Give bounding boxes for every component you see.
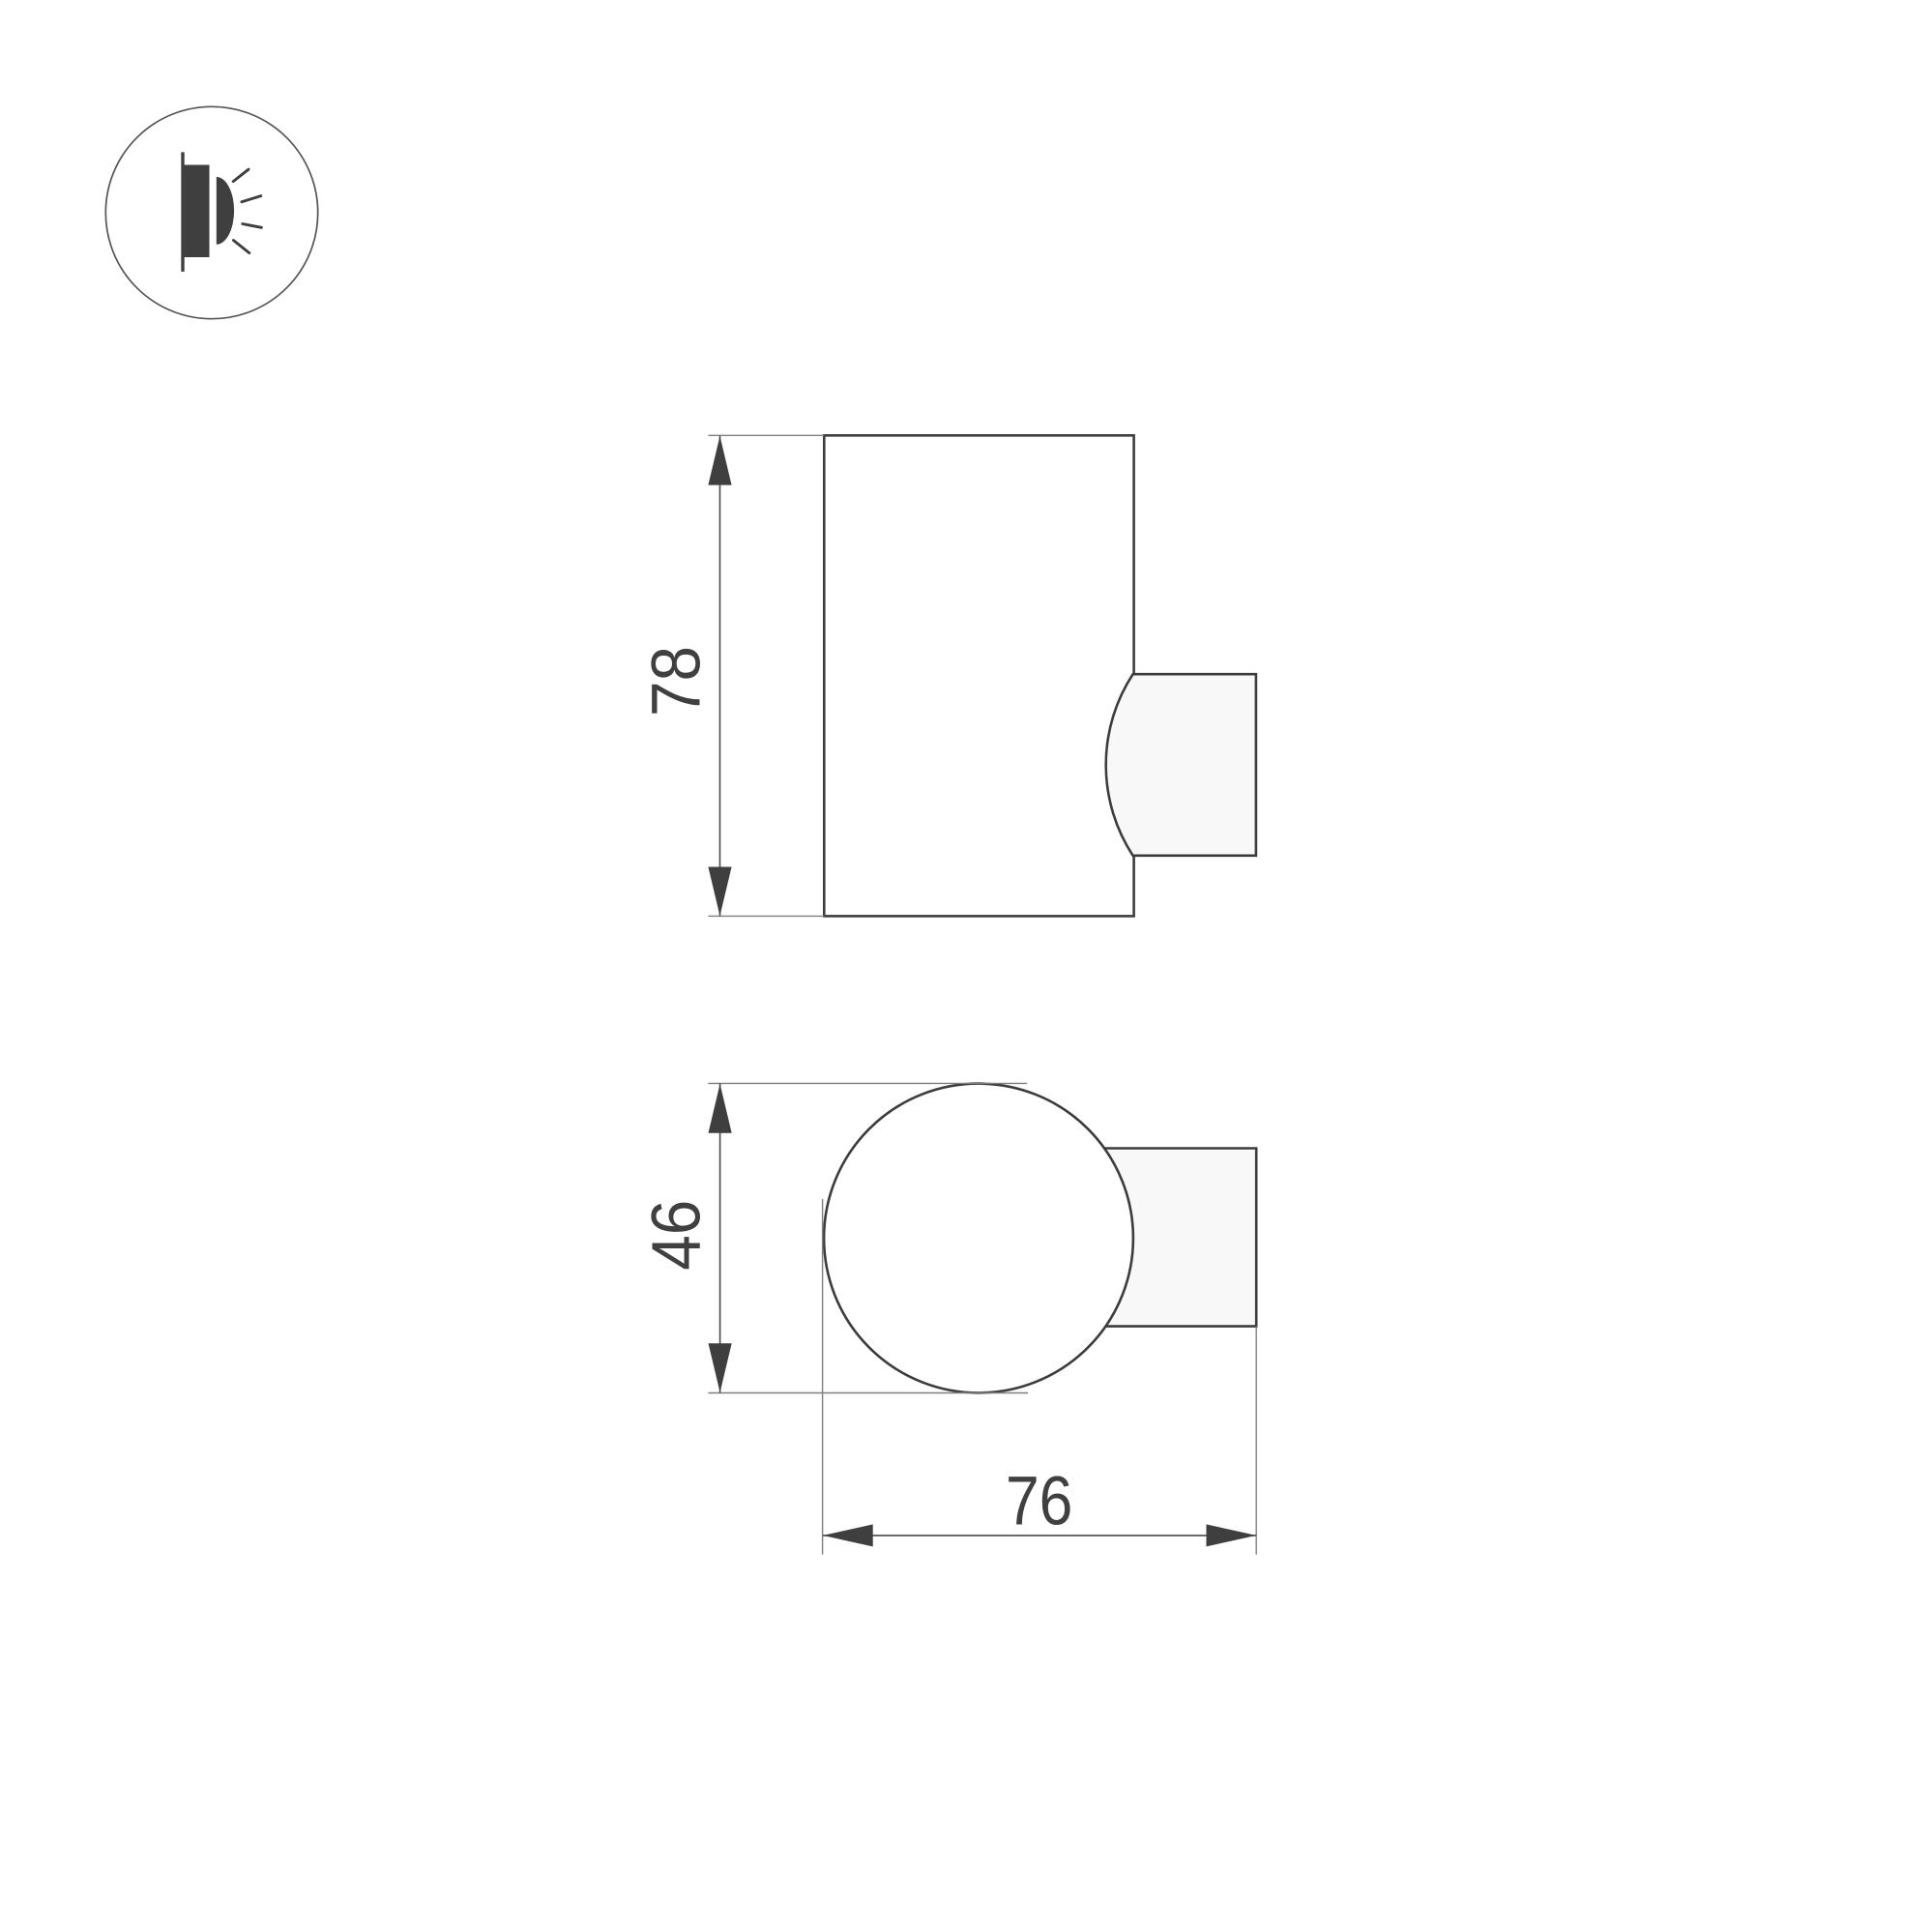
svg-text:78: 78 [638,646,715,717]
svg-text:76: 76 [1006,1463,1073,1539]
svg-text:46: 46 [638,1200,715,1271]
